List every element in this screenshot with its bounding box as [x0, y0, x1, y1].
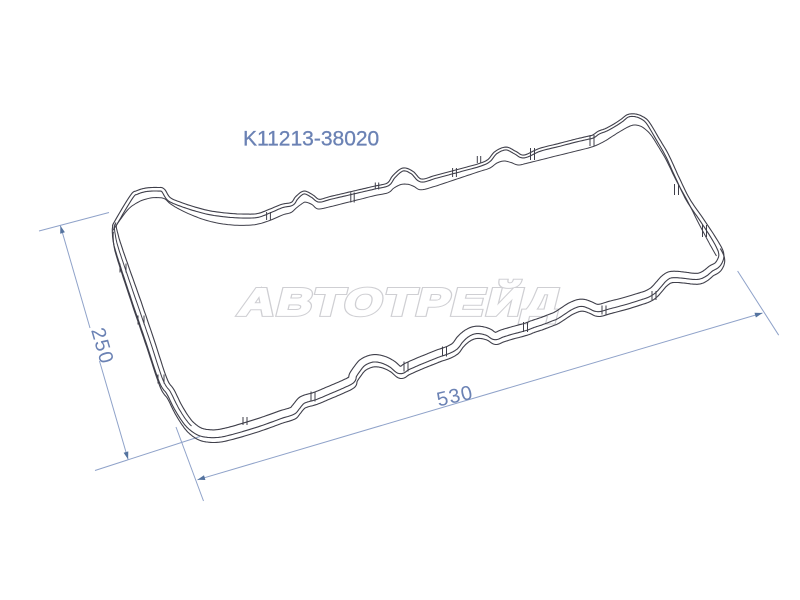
svg-text:АВТОТРЕЙД: АВТОТРЕЙД — [235, 280, 568, 324]
svg-text:K11213-38020: K11213-38020 — [243, 128, 379, 151]
